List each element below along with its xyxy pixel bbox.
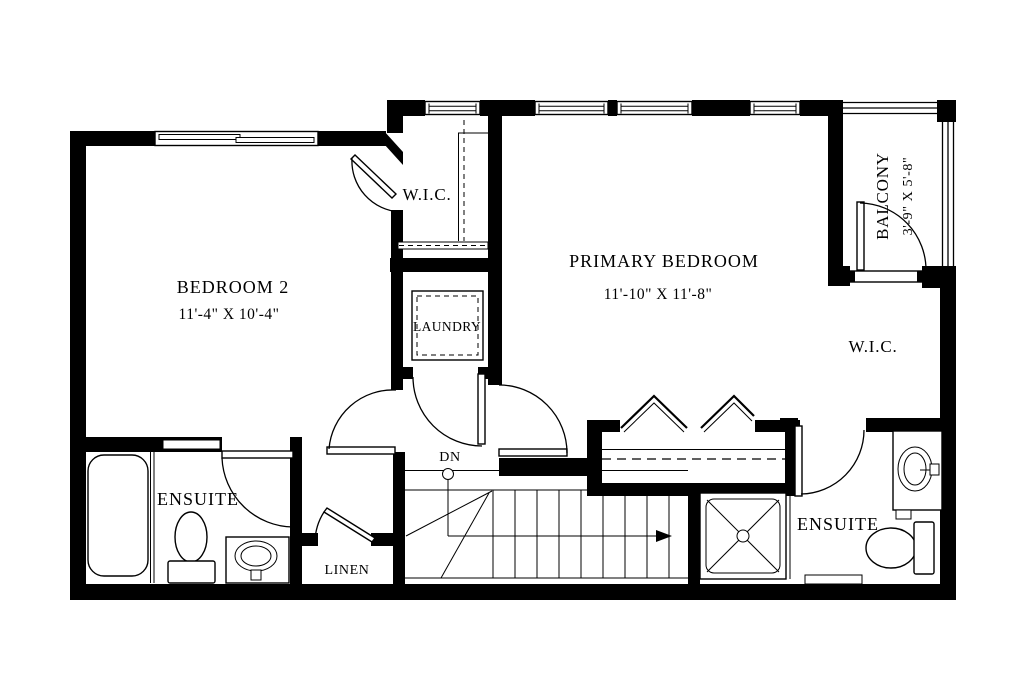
ensuite-left-label: ENSUITE (157, 489, 239, 509)
door-bedroom2 (327, 390, 396, 454)
toilet-left (168, 512, 215, 583)
window-bedroom2 (155, 132, 318, 146)
sink-right (893, 431, 942, 519)
window-wic-upper (425, 102, 480, 115)
balcony-label: BALCONY (873, 152, 892, 240)
window-primary-3 (750, 102, 800, 115)
stair-direction-arrow (448, 530, 672, 542)
balcony-door-sill (848, 271, 924, 282)
shower (700, 493, 790, 579)
door-wic-upper (351, 155, 400, 212)
wic-upper-label: W.I.C. (402, 185, 451, 204)
balcony-dims: 3'-9" X 5'-8" (901, 157, 916, 236)
niche (805, 575, 862, 584)
closet-bifold-doors (621, 396, 754, 432)
ensuite-right-label: ENSUITE (797, 514, 879, 534)
window-primary-2 (617, 102, 692, 115)
floor-plan: DN (0, 0, 1024, 691)
bedroom2-dims: 11'-4" X 10'-4" (179, 306, 280, 323)
bedroom2-label: BEDROOM 2 (177, 277, 290, 297)
doors (222, 155, 926, 542)
door-linen (315, 508, 375, 542)
door-laundry (413, 374, 485, 446)
window-primary-1 (535, 102, 608, 115)
door-ensuite-right (795, 426, 864, 496)
primary-bedroom-label: PRIMARY BEDROOM (569, 251, 759, 271)
linen-label: LINEN (325, 563, 370, 578)
stairs-down-label: DN (439, 450, 460, 465)
sink-left (226, 537, 289, 583)
primary-bedroom-dims: 11'-10" X 11'-8" (604, 286, 713, 303)
wic-right-label: W.I.C. (848, 337, 897, 356)
door-primary-bedroom (499, 385, 567, 456)
laundry-label: LAUNDRY (413, 319, 481, 334)
floor-plan-drawing: DN (0, 0, 1024, 691)
bathtub (88, 452, 154, 583)
